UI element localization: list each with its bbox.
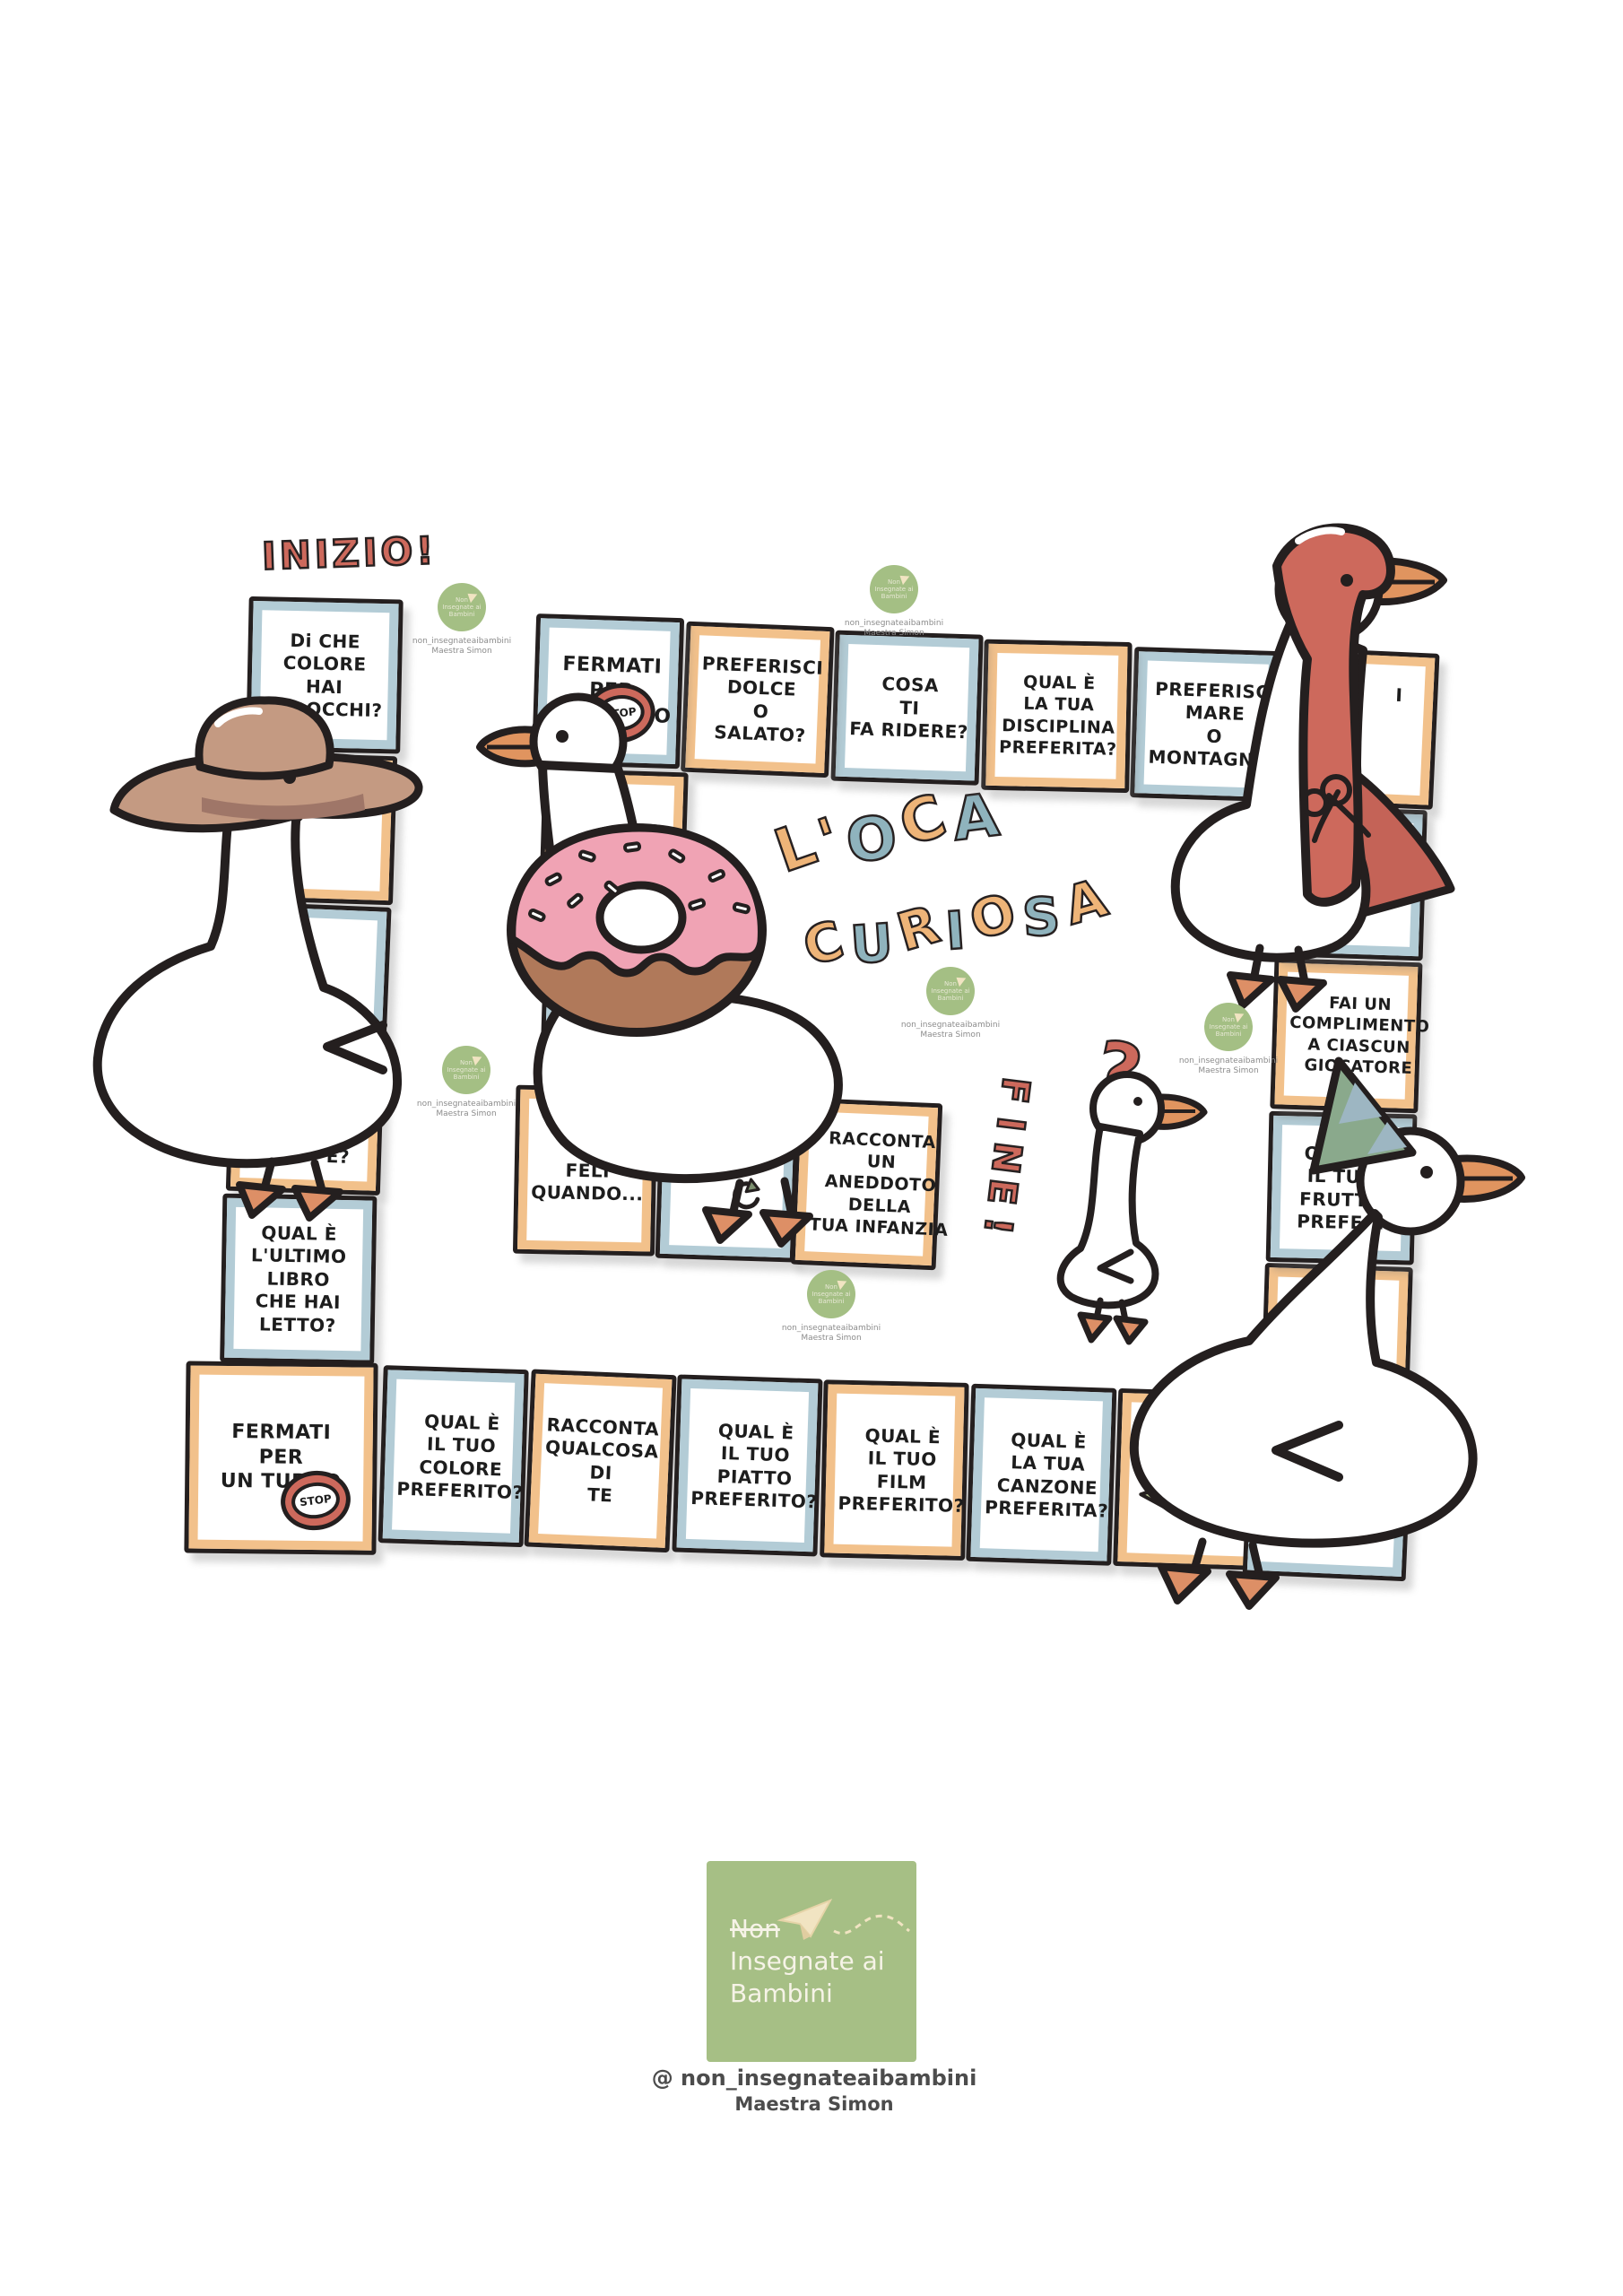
square-inner: FERMATIPERUN TURNO STOP bbox=[188, 1366, 373, 1551]
square-text-line: PREFERISCI bbox=[701, 653, 823, 678]
square-text-line: QUAL È bbox=[864, 1425, 941, 1447]
square-text-line: QUAL È bbox=[718, 1421, 794, 1443]
square-text-line: COSA bbox=[881, 674, 939, 696]
watermark-author: Maestra Simon bbox=[883, 1031, 1018, 1040]
square-inner: RACCONTAQUALCOSADITE bbox=[529, 1374, 673, 1548]
watermark-logo-icon: Non Insegnate ai Bambini bbox=[807, 1270, 855, 1318]
paper-plane-icon bbox=[473, 1054, 484, 1066]
foot-icon bbox=[1161, 1567, 1208, 1601]
watermark-handle: non_insegnateaibambini bbox=[395, 637, 529, 647]
square-text-line: COLORE bbox=[419, 1457, 502, 1479]
square-text-line: FILM bbox=[877, 1471, 927, 1492]
square-text-line: PIATTO bbox=[716, 1465, 792, 1488]
stop-sign-label: STOP bbox=[290, 1480, 343, 1522]
square-text-line: IL TUO bbox=[427, 1434, 497, 1457]
brand-logo-card: Non Insegnate ai Bambini bbox=[707, 1861, 916, 2062]
brand-text: Non Insegnate ai Bambini bbox=[730, 1913, 885, 2010]
square-text: QUAL ÈIL TUOPIATTOPREFERITO? bbox=[686, 1388, 824, 1544]
goose-body bbox=[1061, 1126, 1156, 1305]
square-text-line: PREFERITO? bbox=[690, 1488, 818, 1512]
board-square-7: QUAL ÈIL TUOCOLOREPREFERITO? bbox=[378, 1365, 529, 1547]
foot-icon bbox=[239, 1185, 282, 1215]
square-text-line: QUAL È bbox=[261, 1222, 337, 1244]
square-text-line: FERMATI bbox=[231, 1422, 331, 1445]
brand-line2: Bambini bbox=[730, 1978, 885, 2010]
square-text-line: DISCIPLINA bbox=[1002, 717, 1115, 738]
square-text-line: PREFERITA? bbox=[999, 738, 1117, 760]
square-text-line: IL TUO bbox=[867, 1448, 937, 1470]
paper-plane-icon bbox=[900, 573, 912, 586]
watermark-author: Maestra Simon bbox=[1161, 1066, 1296, 1076]
board-square-9: QUAL ÈIL TUOPIATTOPREFERITO? bbox=[672, 1374, 822, 1556]
square-text-line: COLORE bbox=[283, 653, 367, 674]
brand-negation: Non bbox=[730, 1914, 780, 1944]
eye-icon bbox=[556, 730, 568, 743]
square-text: QUAL ÈL'ULTIMOLIBROCHE HAILETTO? bbox=[233, 1207, 363, 1351]
square-text: QUAL ÈIL TUOCOLOREPREFERITO? bbox=[392, 1379, 530, 1535]
foot-icon bbox=[1230, 975, 1271, 1005]
watermark-logo-icon: Non Insegnate ai Bambini bbox=[1204, 1003, 1253, 1051]
board-square-8: RACCONTAQUALCOSADITE bbox=[524, 1370, 676, 1553]
goose-donut bbox=[471, 686, 874, 1269]
watermark-logo-icon: Non Insegnate ai Bambini bbox=[438, 583, 486, 631]
watermark: Non Insegnate ai Bambini non_insegnateai… bbox=[764, 1270, 898, 1344]
paper-plane-icon bbox=[838, 1278, 849, 1291]
foot-icon bbox=[295, 1188, 340, 1218]
square-text-line: DI bbox=[589, 1462, 612, 1483]
square-inner: QUAL ÈIL TUOFILMPREFERITO? bbox=[824, 1384, 964, 1555]
square-inner: QUAL ÈIL TUOCOLOREPREFERITO? bbox=[383, 1370, 525, 1543]
foot-icon bbox=[1229, 1574, 1276, 1606]
goose-wondering bbox=[1045, 1030, 1211, 1352]
watermark: Non Insegnate ai Bambini non_insegnateai… bbox=[827, 565, 961, 639]
goose-cowboy-hat bbox=[67, 677, 435, 1224]
square-text-line: RACCONTA bbox=[546, 1414, 659, 1439]
board-square-10: QUAL ÈIL TUOFILMPREFERITO? bbox=[820, 1379, 968, 1561]
square-text-line: TI bbox=[899, 698, 920, 718]
square-text-line: LIBRO bbox=[266, 1268, 330, 1290]
watermark: Non Insegnate ai Bambini non_insegnateai… bbox=[1161, 1003, 1296, 1076]
board-square-11: QUAL ÈLA TUACANZONEPREFERITA? bbox=[966, 1384, 1116, 1566]
watermark-author: Maestra Simon bbox=[827, 629, 961, 639]
square-text-line: QUAL È bbox=[1023, 674, 1096, 694]
square-text-line: LETTO? bbox=[259, 1314, 336, 1335]
square-text: QUAL ÈIL TUOFILMPREFERITO? bbox=[834, 1394, 971, 1547]
footer-author: Maestra Simon bbox=[626, 2093, 1002, 2115]
square-text-line: Di CHE bbox=[290, 631, 360, 652]
square-inner: QUAL ÈLA TUACANZONEPREFERITA? bbox=[970, 1388, 1112, 1561]
square-text-line: L'ULTIMO bbox=[251, 1246, 347, 1267]
paper-plane-icon bbox=[957, 975, 968, 987]
square-text: QUAL ÈLA TUACANZONEPREFERITA? bbox=[980, 1397, 1115, 1552]
square-text-line: CHE HAI bbox=[256, 1291, 342, 1312]
watermark: Non Insegnate ai Bambini non_insegnateai… bbox=[883, 967, 1018, 1040]
square-text-line: PER bbox=[259, 1447, 304, 1469]
eye-icon bbox=[283, 771, 296, 784]
square-text-line: LA TUA bbox=[1011, 1452, 1086, 1474]
watermark: Non Insegnate ai Bambini non_insegnateai… bbox=[399, 1046, 534, 1119]
square-text-line: PREFERITO? bbox=[838, 1493, 965, 1517]
eye-icon bbox=[1420, 1166, 1433, 1178]
foot-icon bbox=[706, 1210, 749, 1240]
square-text-line: PREFERITA? bbox=[985, 1497, 1109, 1521]
eye-icon bbox=[1341, 574, 1353, 587]
paper-plane-icon bbox=[468, 591, 480, 604]
brand-line1: Insegnate ai bbox=[730, 1945, 885, 1978]
goose-red-hood bbox=[1139, 507, 1506, 1027]
board-square-20: QUAL ÈLA TUADISCIPLINAPREFERITA? bbox=[981, 639, 1132, 793]
watermark-logo-icon: Non Insegnate ai Bambini bbox=[926, 967, 975, 1015]
board-square-6: FERMATIPERUN TURNO STOP bbox=[184, 1361, 378, 1555]
goose-body bbox=[98, 803, 397, 1163]
watermark-handle: non_insegnateaibambini bbox=[827, 619, 961, 629]
watermark-author: Maestra Simon bbox=[399, 1109, 534, 1119]
watermark-handle: non_insegnateaibambini bbox=[883, 1021, 1018, 1031]
square-inner: QUAL ÈLA TUADISCIPLINAPREFERITA? bbox=[985, 644, 1127, 788]
cowboy-hat-crown bbox=[199, 700, 330, 776]
square-text: QUAL ÈLA TUADISCIPLINAPREFERITA? bbox=[994, 653, 1122, 779]
square-text: RACCONTAQUALCOSADITE bbox=[538, 1383, 664, 1538]
watermark-logo-icon: Non Insegnate ai Bambini bbox=[870, 565, 918, 613]
foot-icon bbox=[1081, 1315, 1109, 1340]
watermark: Non Insegnate ai Bambini non_insegnateai… bbox=[395, 583, 529, 657]
square-text-line: LA TUA bbox=[1023, 695, 1094, 716]
square-text-line: CANZONE bbox=[996, 1474, 1098, 1498]
footer-handle: @ non_insegnateaibambini bbox=[626, 2066, 1002, 2091]
square-text-line: IL TUO bbox=[721, 1443, 791, 1465]
square-text-line: QUALCOSA bbox=[545, 1437, 659, 1462]
watermark-handle: non_insegnateaibambini bbox=[1161, 1057, 1296, 1066]
foot-icon bbox=[1116, 1318, 1145, 1342]
square-text-line: QUAL È bbox=[424, 1411, 500, 1433]
watermark-handle: non_insegnateaibambini bbox=[399, 1100, 534, 1109]
paper-plane-icon bbox=[1235, 1011, 1246, 1023]
square-text-line: TE bbox=[587, 1484, 613, 1506]
watermark-handle: non_insegnateaibambini bbox=[764, 1324, 898, 1334]
watermark-author: Maestra Simon bbox=[395, 647, 529, 657]
square-text-line: QUAL È bbox=[1011, 1430, 1087, 1452]
square-text-line: FERMATI bbox=[562, 654, 663, 679]
watermark-author: Maestra Simon bbox=[764, 1334, 898, 1344]
eye-icon bbox=[1133, 1097, 1142, 1106]
foot-icon bbox=[763, 1213, 810, 1244]
square-inner: QUAL ÈIL TUOPIATTOPREFERITO? bbox=[677, 1379, 819, 1552]
watermark-logo-icon: Non Insegnate ai Bambini bbox=[442, 1046, 490, 1094]
square-text-line: PREFERITO? bbox=[396, 1479, 524, 1503]
